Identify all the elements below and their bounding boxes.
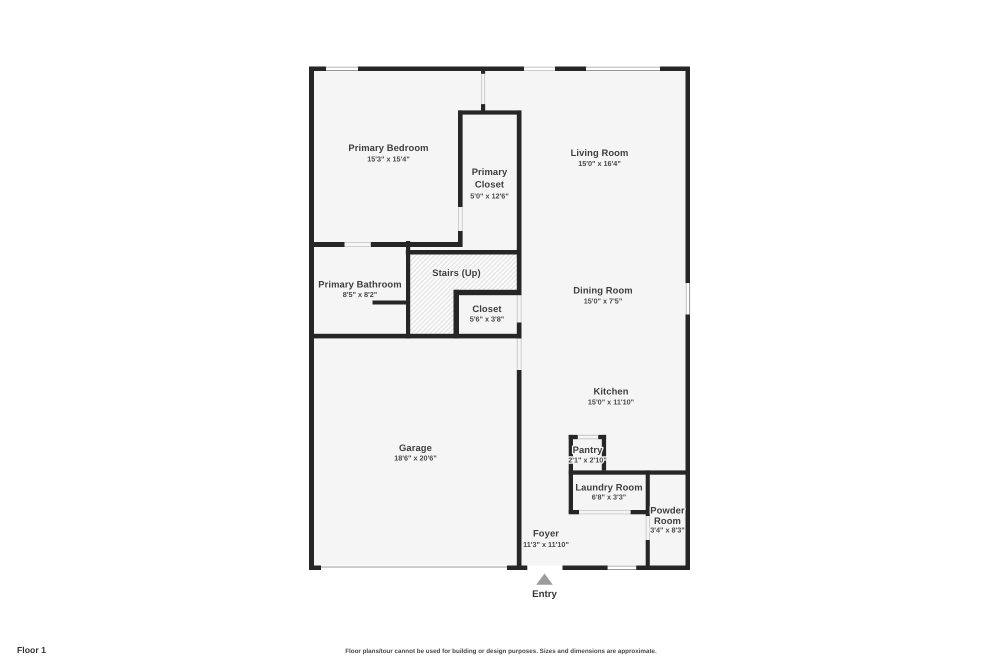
svg-text:15'0" x 7'5": 15'0" x 7'5"	[584, 297, 623, 306]
svg-text:8'5" x 8'2": 8'5" x 8'2"	[343, 290, 378, 299]
svg-text:Living Room: Living Room	[571, 147, 629, 158]
svg-text:Floor 1: Floor 1	[17, 645, 46, 655]
svg-text:15'3" x 15'4": 15'3" x 15'4"	[367, 155, 410, 164]
svg-text:Primary Bathroom: Primary Bathroom	[318, 279, 401, 290]
svg-text:5'0" x 12'6": 5'0" x 12'6"	[470, 192, 509, 201]
svg-text:6'8" x 3'3": 6'8" x 3'3"	[592, 493, 627, 502]
svg-text:11'3" x 11'10": 11'3" x 11'10"	[523, 540, 569, 549]
svg-text:Garage: Garage	[399, 442, 432, 453]
svg-text:Floor plans/tour cannot be use: Floor plans/tour cannot be used for buil…	[345, 648, 657, 655]
svg-text:5'6" x 3'8": 5'6" x 3'8"	[470, 315, 505, 324]
svg-text:Primary: Primary	[472, 166, 508, 177]
svg-text:Laundry Room: Laundry Room	[575, 482, 642, 493]
svg-text:Dining Room: Dining Room	[573, 285, 632, 296]
svg-text:Room: Room	[654, 515, 681, 526]
svg-text:Entry: Entry	[532, 589, 557, 600]
svg-text:15'0" x 16'4": 15'0" x 16'4"	[578, 159, 621, 168]
svg-text:Kitchen: Kitchen	[593, 386, 628, 397]
svg-text:Primary Bedroom: Primary Bedroom	[348, 142, 428, 153]
svg-text:Pantry: Pantry	[573, 444, 603, 455]
svg-text:Powder: Powder	[650, 505, 685, 516]
svg-text:Stairs (Up): Stairs (Up)	[432, 267, 481, 278]
svg-text:Closet: Closet	[475, 179, 504, 190]
svg-text:15'0" x 11'10": 15'0" x 11'10"	[588, 398, 634, 407]
svg-text:2'1" x 2'10": 2'1" x 2'10"	[568, 456, 607, 465]
svg-text:Closet: Closet	[472, 303, 501, 314]
svg-text:18'6" x 20'6": 18'6" x 20'6"	[394, 454, 437, 463]
svg-text:Foyer: Foyer	[533, 528, 559, 539]
svg-text:3'4" x 8'3": 3'4" x 8'3"	[650, 526, 685, 535]
